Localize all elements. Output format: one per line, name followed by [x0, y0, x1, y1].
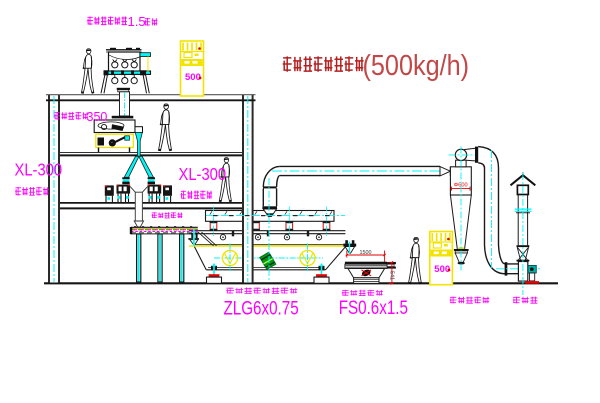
- svg-text:350: 350: [87, 110, 108, 124]
- svg-text:500: 500: [185, 72, 201, 83]
- svg-text:1500: 1500: [360, 250, 372, 256]
- svg-text:FS0.6x1.5: FS0.6x1.5: [339, 296, 408, 318]
- svg-text:ZLG6x0.75: ZLG6x0.75: [224, 297, 299, 319]
- svg-text:(500kg/h): (500kg/h): [363, 48, 470, 81]
- svg-text:1.5: 1.5: [128, 14, 146, 29]
- svg-text:541: 541: [389, 271, 395, 280]
- svg-text:XL-300: XL-300: [15, 160, 63, 180]
- svg-text:XL-300: XL-300: [179, 165, 227, 185]
